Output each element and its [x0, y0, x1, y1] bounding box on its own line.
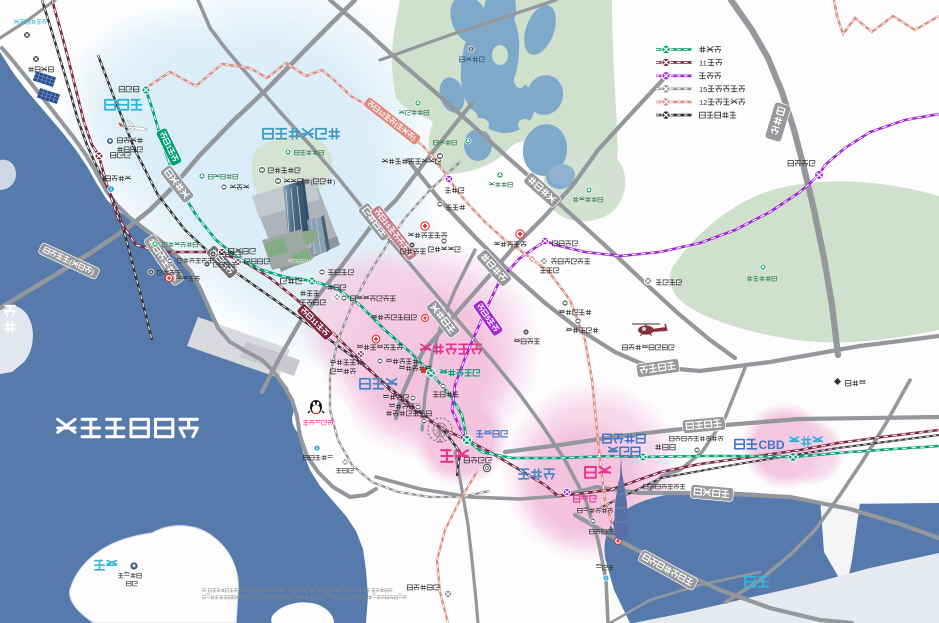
svg-text:,: , [287, 588, 288, 593]
svg-text:,: , [370, 588, 371, 593]
svg-text:15: 15 [699, 85, 707, 94]
svg-text:CBD: CBD [759, 438, 785, 452]
svg-text:12: 12 [699, 98, 707, 107]
svg-text::: : [206, 588, 207, 593]
svg-text:,: , [345, 595, 346, 600]
svg-text:,: , [255, 588, 256, 593]
svg-text:,: , [309, 595, 310, 600]
svg-text:A: A [438, 439, 442, 445]
svg-text:11: 11 [699, 58, 707, 67]
svg-text:): ) [333, 179, 335, 186]
